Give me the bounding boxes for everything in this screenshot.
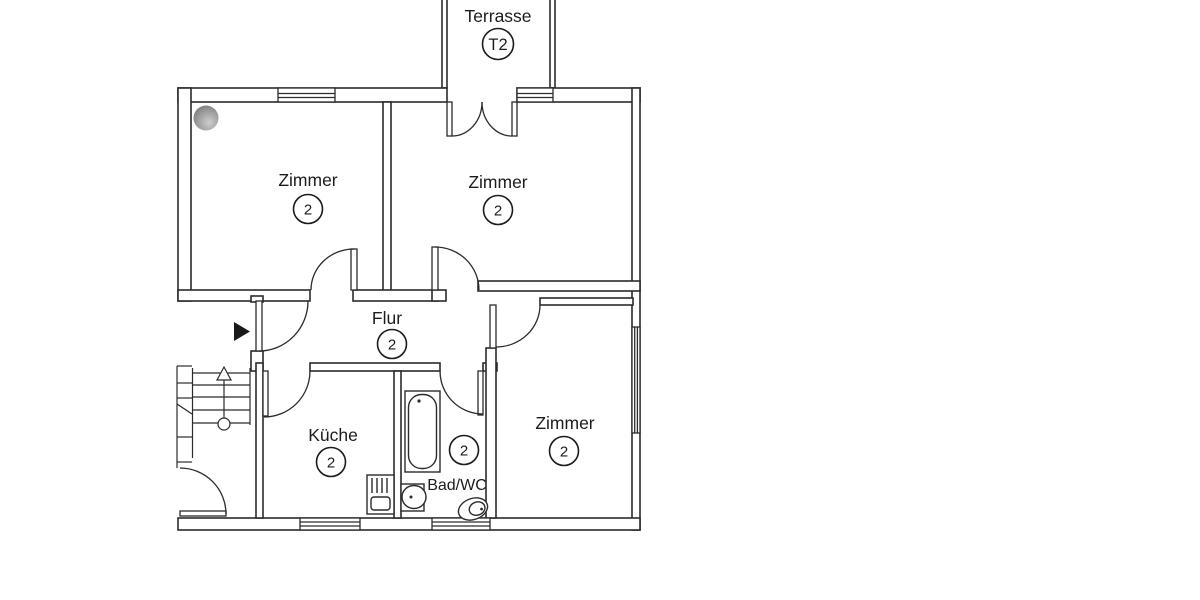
room-label-kueche: Küche xyxy=(308,425,358,445)
wall-kitchen-west xyxy=(256,363,263,518)
floorplan-canvas: Terrasse T2 Zimmer 2 Zimmer 2 Flur 2 Küc… xyxy=(0,0,1200,600)
wall-room2-south xyxy=(478,281,640,291)
wall-door-jamb-step xyxy=(432,290,446,301)
door-bath xyxy=(440,371,483,415)
wall-room3-north xyxy=(540,298,633,305)
wall-left xyxy=(178,88,191,301)
room-number-zimmer-top-right: 2 xyxy=(494,203,502,220)
terrace-label: Terrasse xyxy=(464,6,531,26)
door-terrace xyxy=(447,102,517,136)
wall-bath-room3-divider xyxy=(486,348,496,518)
window-bottom-bath xyxy=(432,518,490,530)
wall-hall-south-a xyxy=(310,363,440,371)
room-number-zimmer-top-left: 2 xyxy=(304,202,312,219)
door-entrance xyxy=(256,301,308,351)
washbasin-symbol xyxy=(401,484,426,511)
wall-bottom xyxy=(178,518,640,530)
room-label-bad: Bad/WC xyxy=(427,477,487,494)
window-top-right xyxy=(517,88,553,102)
stove-symbol xyxy=(367,475,394,514)
room-label-zimmer-top-left: Zimmer xyxy=(278,170,337,190)
room-number-flur: 2 xyxy=(388,337,396,354)
terrace-wall-left xyxy=(442,0,447,88)
wall-hall-north-b xyxy=(353,290,438,301)
room-number-kueche: 2 xyxy=(327,455,335,472)
door-zimmer-bottom-right xyxy=(490,305,540,348)
floorplan-drawing: Terrasse T2 Zimmer 2 Zimmer 2 Flur 2 Küc… xyxy=(0,0,1200,600)
room-number-bad: 2 xyxy=(460,443,468,460)
ceiling-light-marker xyxy=(194,106,219,131)
door-zimmer-top-right xyxy=(432,247,479,290)
door-zimmer-top-left xyxy=(311,249,357,290)
room-number-zimmer-bottom-right: 2 xyxy=(560,444,568,461)
room-label-zimmer-top-right: Zimmer xyxy=(468,172,527,192)
staircase xyxy=(177,366,250,468)
bathtub-symbol xyxy=(405,391,440,472)
room-label-flur: Flur xyxy=(372,308,402,328)
wall-right xyxy=(632,88,640,530)
window-bottom-kitchen xyxy=(300,518,360,530)
window-east xyxy=(632,327,640,433)
door-building-entrance xyxy=(180,468,226,516)
terrace-number: T2 xyxy=(488,36,507,54)
wall-kitchen-bath-divider xyxy=(394,371,401,518)
room-label-zimmer-bottom-right: Zimmer xyxy=(535,413,594,433)
wall-divider-top-rooms xyxy=(383,102,391,291)
door-kitchen xyxy=(263,371,310,417)
terrace-wall-right xyxy=(550,0,555,88)
entrance-arrow-icon xyxy=(234,322,250,341)
stair-direction-arrow xyxy=(217,367,231,430)
wall-hall-north-a xyxy=(178,290,310,301)
window-top-left xyxy=(278,88,335,102)
